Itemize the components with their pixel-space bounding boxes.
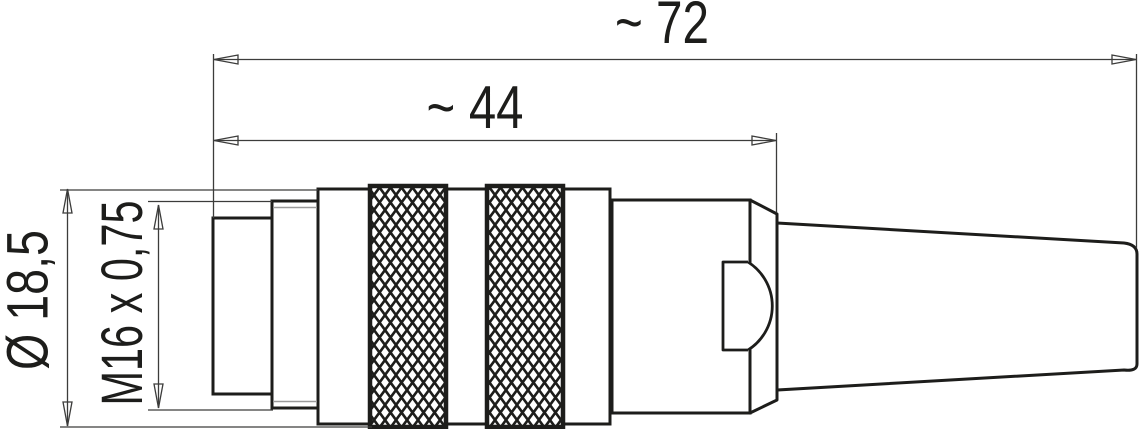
connector-dimension-drawing: ~ 72 ~ 44 Ø 18,5 M16 x 0,75 [0,0,1139,429]
knurl-band-rear [487,186,563,427]
drawing-canvas: ~ 72 ~ 44 Ø 18,5 M16 x 0,75 [0,0,1139,429]
knurl-band-front [370,186,446,427]
front-mating-face [213,218,272,394]
label-front-length: ~ 44 [427,74,524,141]
strain-relief-boot [777,223,1137,390]
coupling-thread-ring [272,201,318,408]
label-thread-spec: M16 x 0,75 [90,201,155,406]
label-outer-diameter: Ø 18,5 [0,230,61,370]
main-shell [318,189,610,424]
label-overall-length: ~ 72 [615,0,709,56]
